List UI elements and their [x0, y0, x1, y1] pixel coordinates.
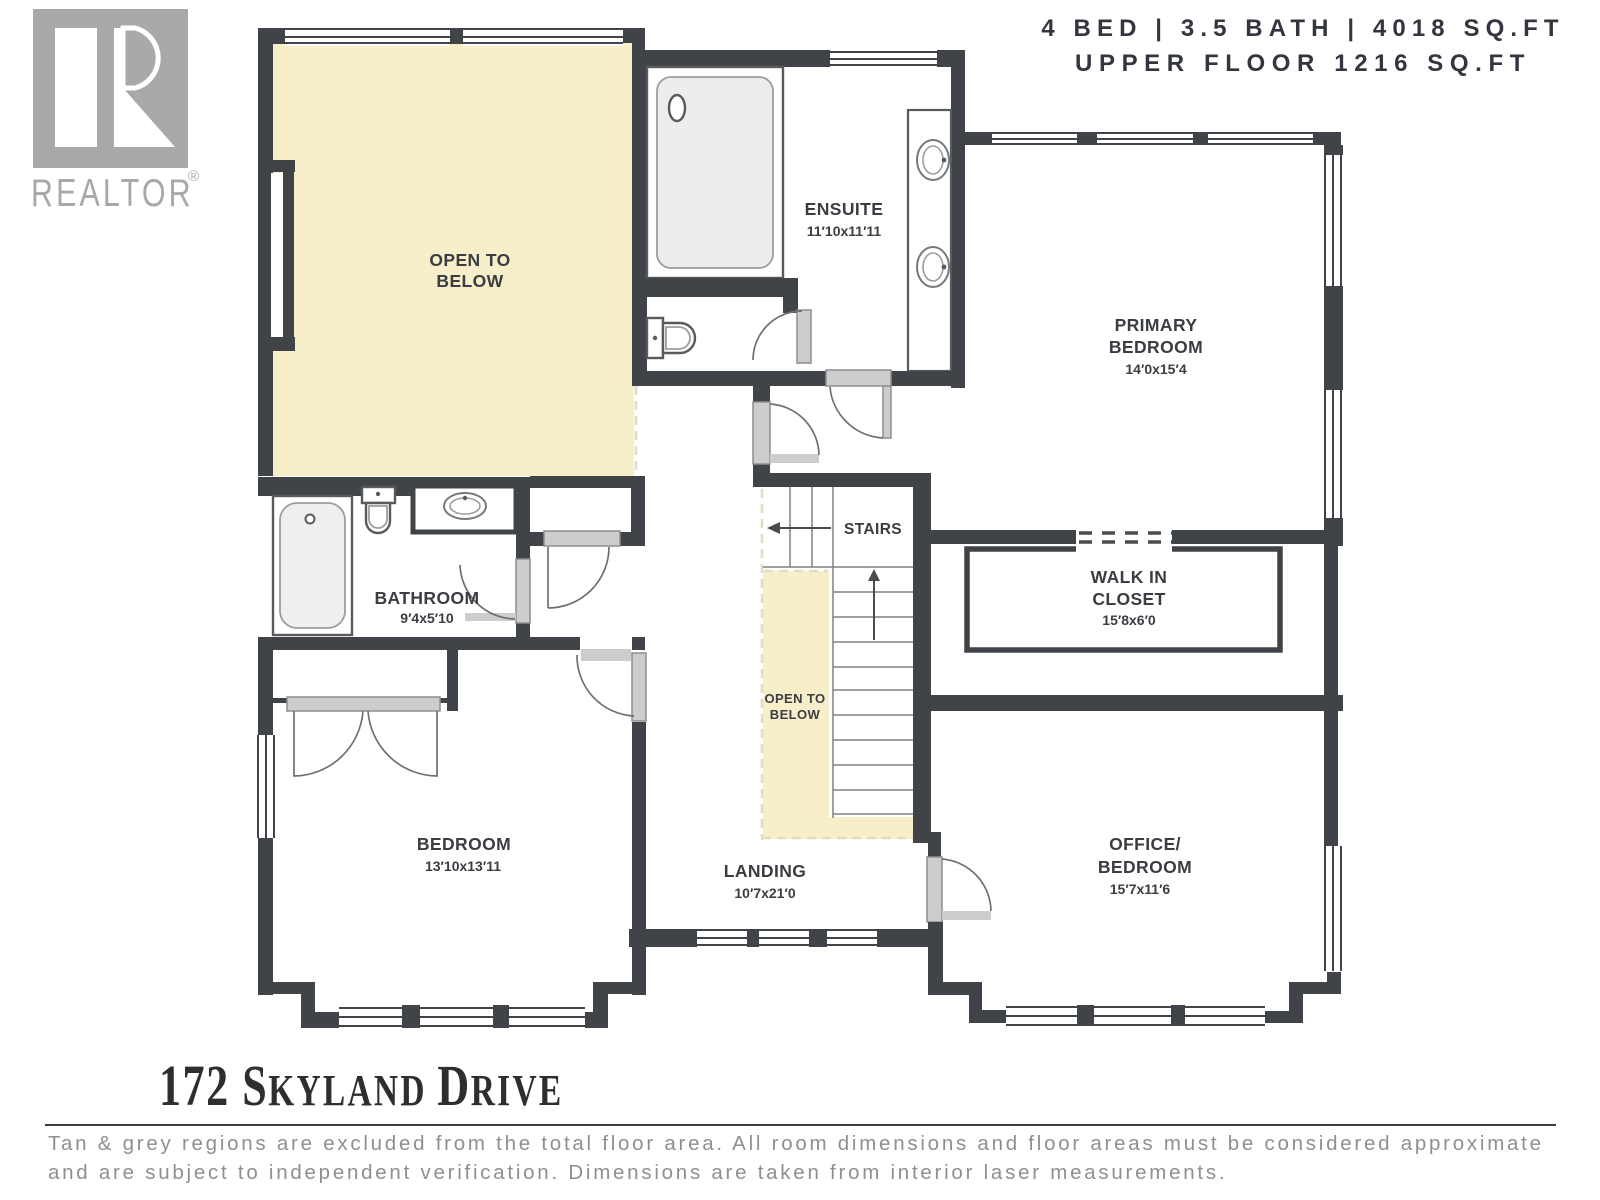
svg-text:BELOW: BELOW	[436, 271, 503, 291]
svg-text:and are subject to independent: and are subject to independent verificat…	[48, 1161, 1227, 1184]
svg-text:BEDROOM: BEDROOM	[1098, 857, 1192, 877]
svg-text:STAIRS: STAIRS	[844, 521, 902, 538]
svg-text:BATHROOM: BATHROOM	[375, 588, 480, 608]
svg-text:OFFICE/: OFFICE/	[1109, 834, 1181, 854]
svg-text:CLOSET: CLOSET	[1092, 589, 1165, 609]
svg-text:9′4x5′10: 9′4x5′10	[400, 610, 454, 626]
svg-text:LANDING: LANDING	[724, 861, 807, 881]
svg-text:WALK IN: WALK IN	[1091, 567, 1168, 587]
svg-text:ENSUITE: ENSUITE	[805, 199, 884, 219]
svg-text:13′10x13′11: 13′10x13′11	[425, 858, 501, 874]
svg-text:Tan & grey regions are exclude: Tan & grey regions are excluded from the…	[48, 1132, 1544, 1155]
svg-text:10′7x21′0: 10′7x21′0	[734, 885, 795, 901]
svg-text:BELOW: BELOW	[770, 707, 821, 722]
svg-text:15′8x6′0: 15′8x6′0	[1102, 612, 1156, 628]
svg-text:OPEN TO: OPEN TO	[429, 250, 510, 270]
svg-text:PRIMARY: PRIMARY	[1115, 315, 1198, 335]
svg-text:REALTOR: REALTOR	[31, 171, 194, 214]
svg-text:UPPER FLOOR 1216 SQ.FT: UPPER FLOOR 1216 SQ.FT	[1075, 50, 1531, 77]
svg-text:BEDROOM: BEDROOM	[1109, 337, 1203, 357]
svg-text:®: ®	[188, 168, 199, 185]
svg-text:15′7x11′6: 15′7x11′6	[1110, 881, 1171, 897]
svg-text:BEDROOM: BEDROOM	[417, 834, 511, 854]
svg-text:11′10x11′11: 11′10x11′11	[807, 223, 882, 239]
svg-text:4 BED | 3.5 BATH | 4018 SQ.FT: 4 BED | 3.5 BATH | 4018 SQ.FT	[1041, 15, 1564, 42]
svg-text:OPEN TO: OPEN TO	[764, 691, 825, 706]
svg-text:14′0x15′4: 14′0x15′4	[1125, 361, 1186, 377]
